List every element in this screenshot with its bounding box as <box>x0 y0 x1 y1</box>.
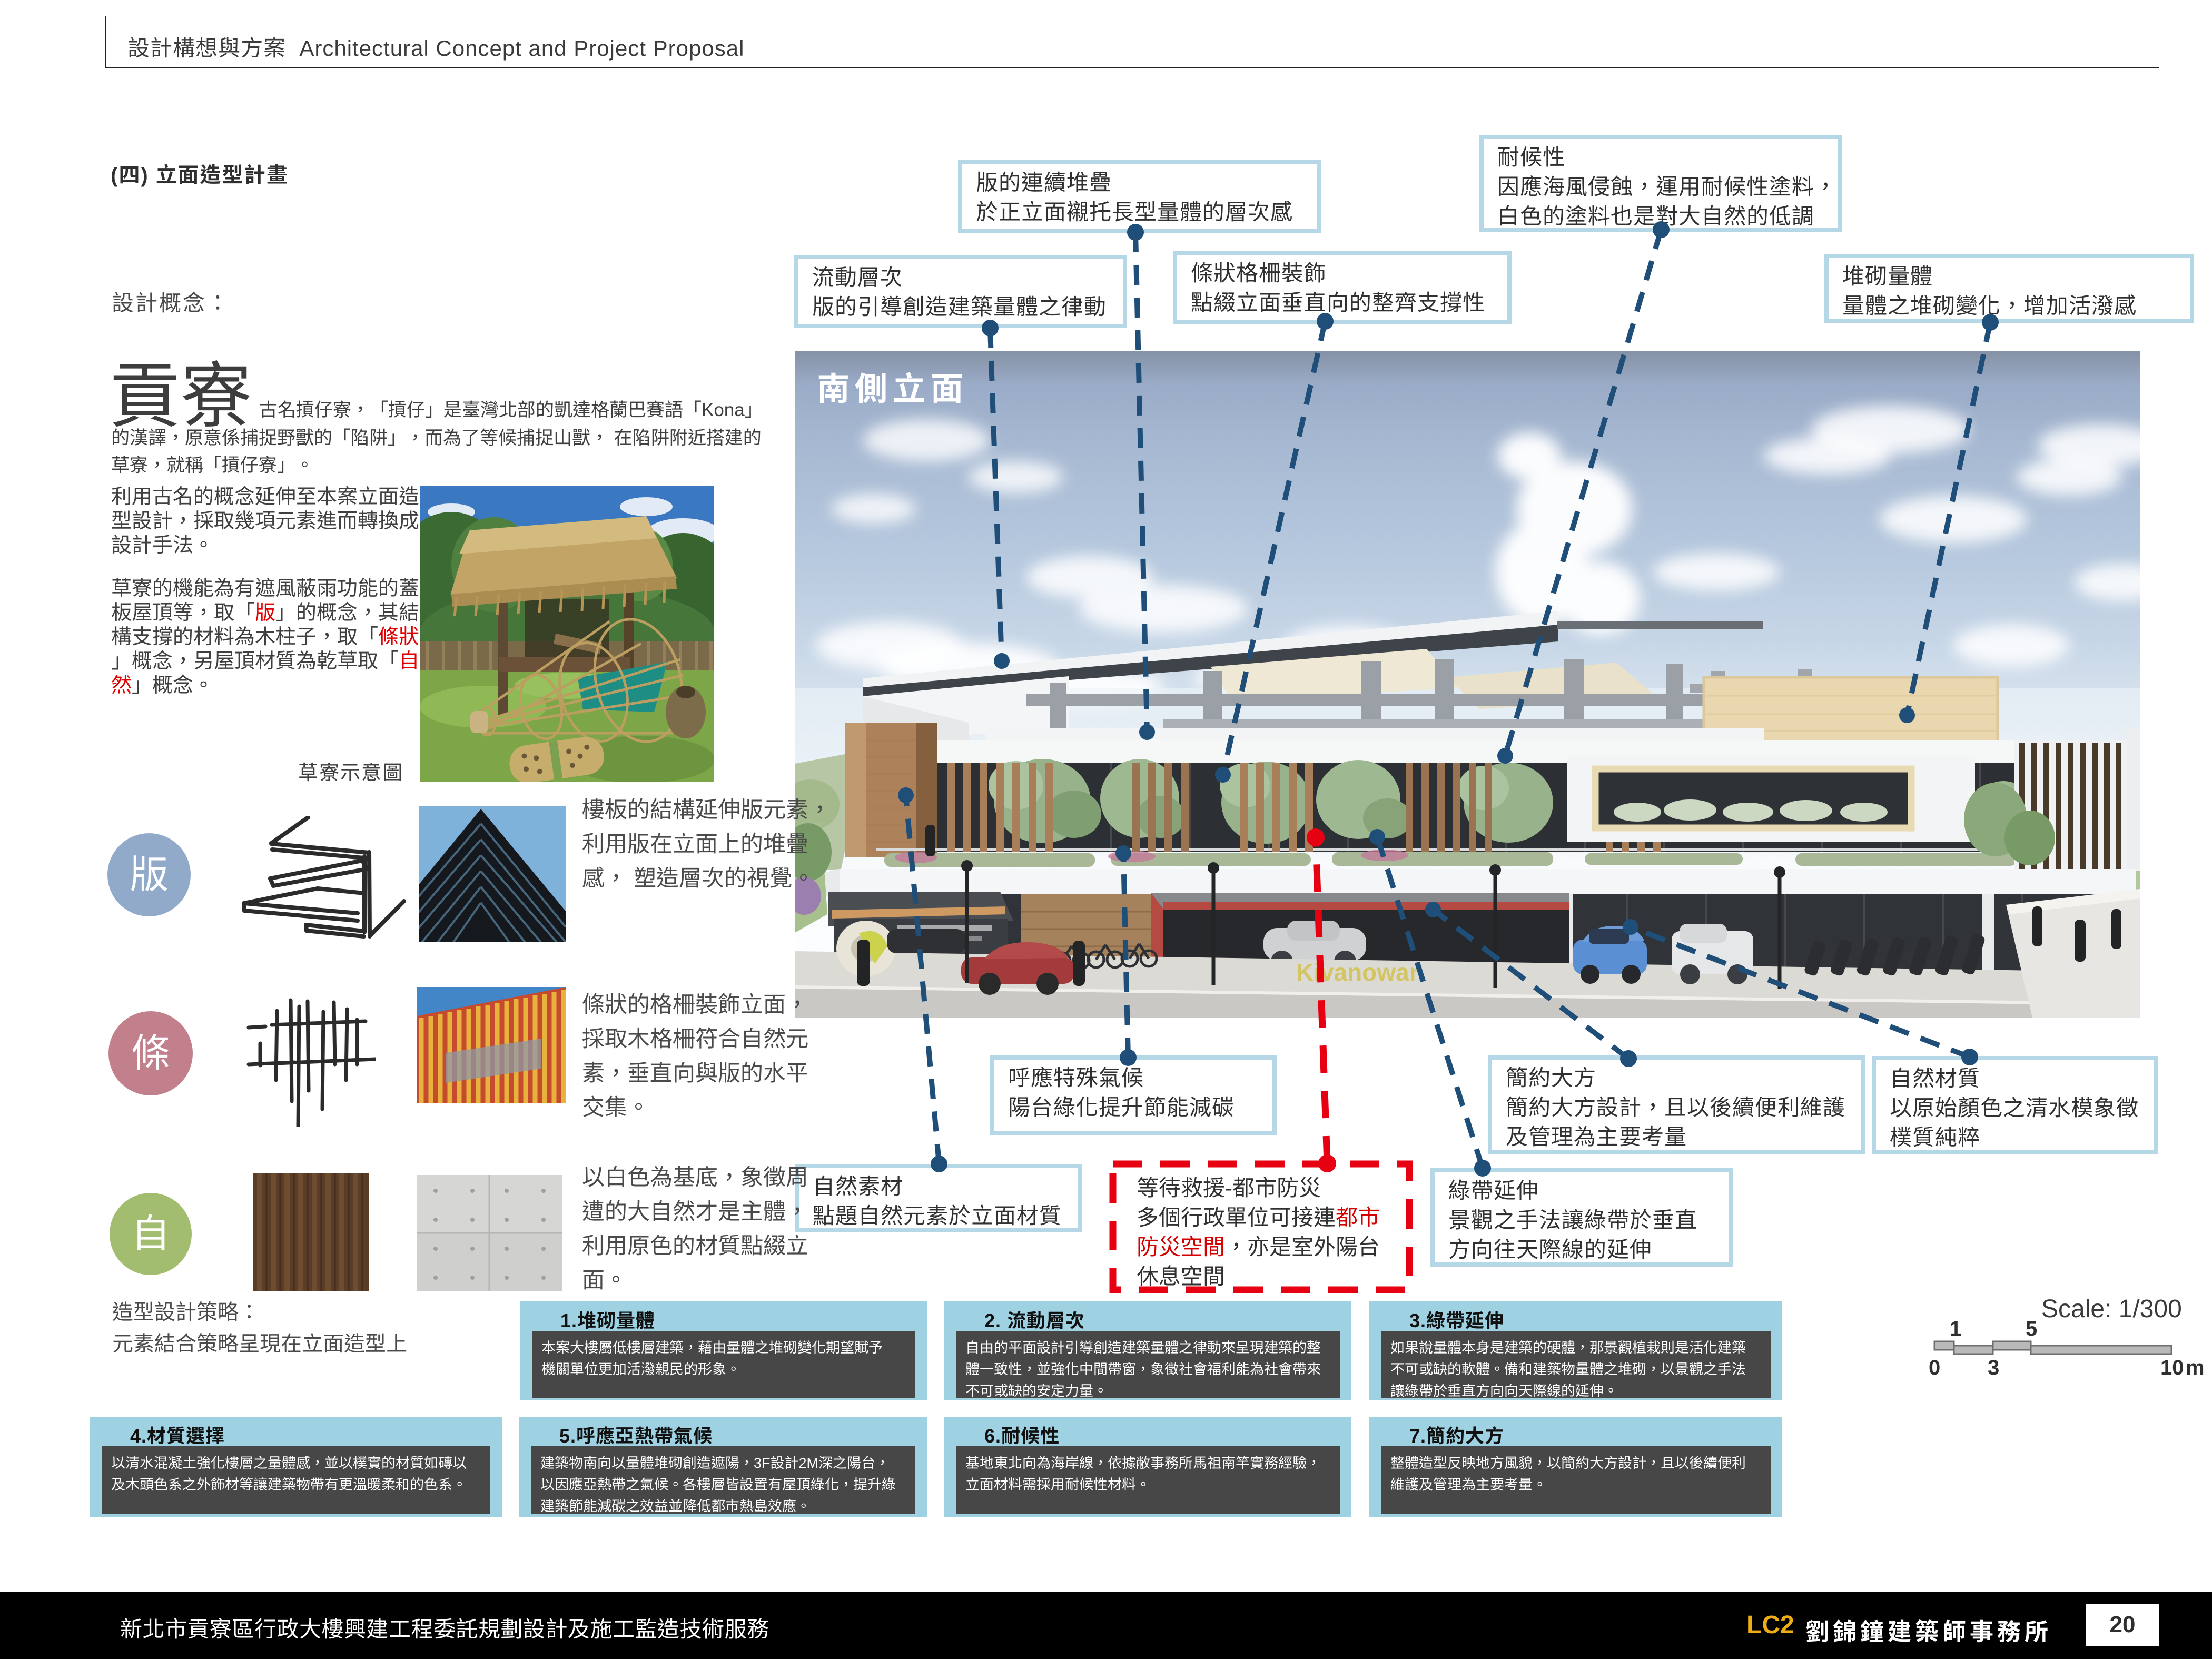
svg-text:m: m <box>2186 1356 2205 1379</box>
svg-text:5: 5 <box>2026 1317 2037 1340</box>
svg-text:3: 3 <box>1988 1356 1999 1379</box>
svg-text:10: 10 <box>2160 1356 2184 1379</box>
svg-text:1: 1 <box>1950 1317 1961 1340</box>
svg-text:0: 0 <box>1929 1356 1940 1379</box>
